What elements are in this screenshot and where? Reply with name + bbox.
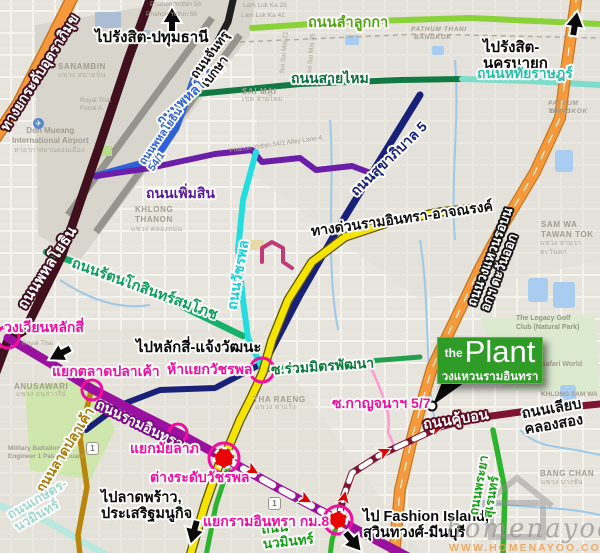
terminal-building bbox=[95, 12, 121, 28]
plant-sign: thePlant วงแหวนรามอินทรา bbox=[437, 337, 543, 384]
route-shield-2: 1 bbox=[268, 497, 281, 510]
plant-sign-subtitle: วงแหวนรามอินทรา bbox=[437, 368, 543, 386]
watermark-brand: homenayoo bbox=[446, 514, 600, 544]
route-shield-1: 1 bbox=[86, 442, 99, 455]
plant-sign-name: Plant bbox=[465, 334, 536, 369]
map-graphics bbox=[0, 0, 600, 553]
watermark-url: WWW.HOMENAYOO.COM bbox=[449, 542, 600, 553]
km8-marker bbox=[329, 511, 347, 529]
plant-sign-the: the bbox=[445, 346, 463, 360]
plant-location-dot bbox=[428, 402, 437, 411]
interchange-marker bbox=[214, 448, 234, 468]
plant-sign-brand: thePlant bbox=[437, 338, 543, 371]
map-canvas: ไปรังสิต-ปทุมธานี ไปรังสิต-นครนายก ไปหลั… bbox=[0, 0, 600, 553]
airport-plane-icon: ✈ bbox=[33, 118, 44, 129]
